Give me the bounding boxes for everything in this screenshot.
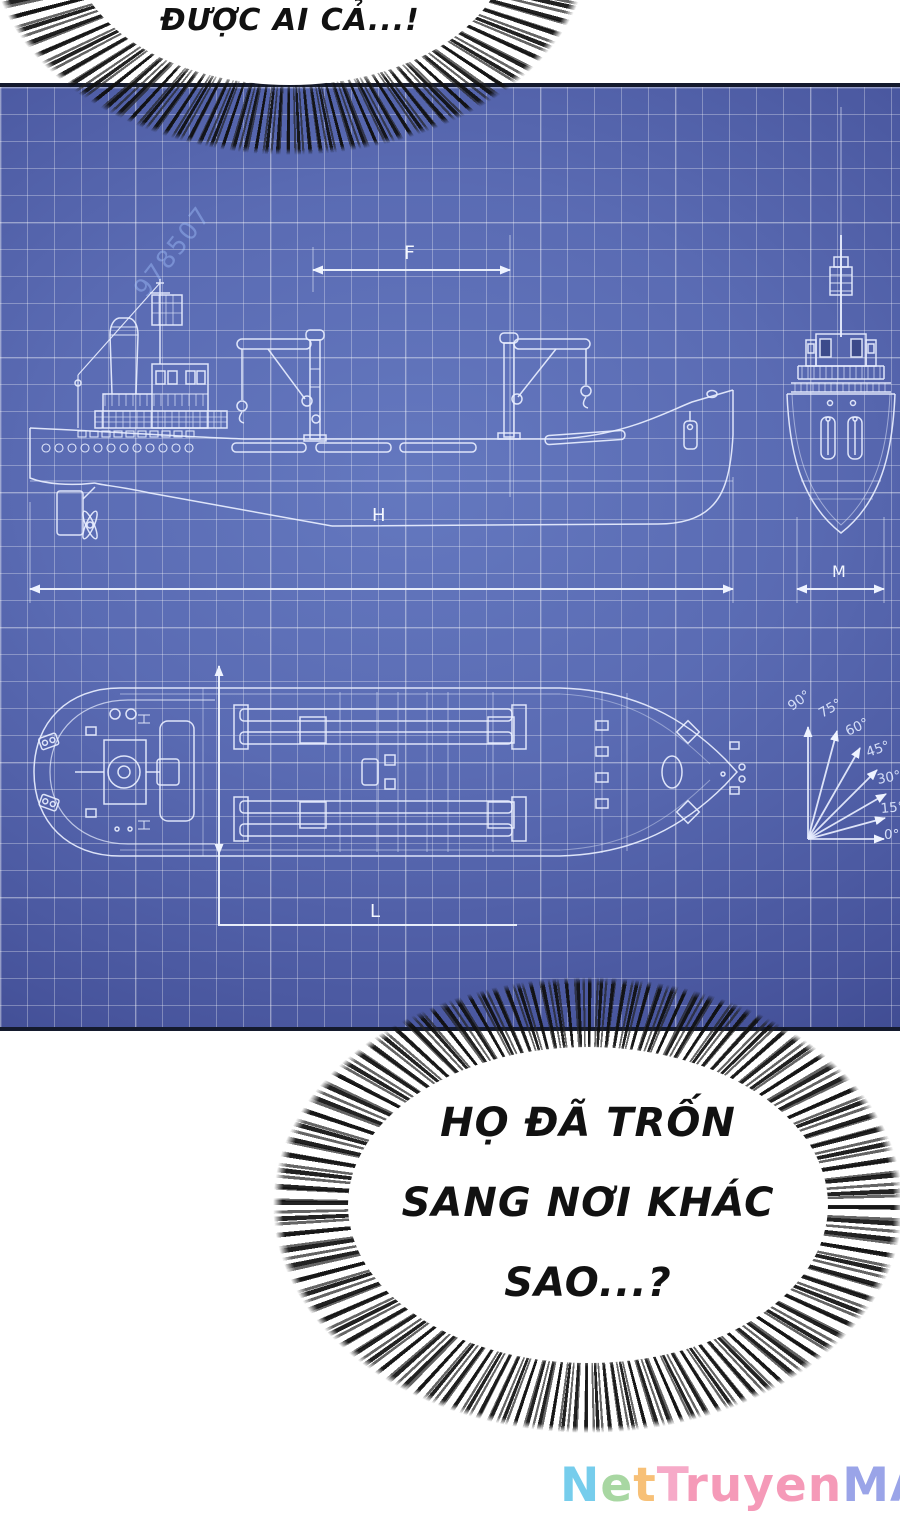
- site-watermark: NetTruyenMAX: [560, 1458, 900, 1513]
- watermark-letter: y: [743, 1458, 775, 1513]
- bow-front-view: [787, 107, 895, 533]
- watermark-letter: e: [775, 1458, 808, 1513]
- bottom-bubble-line-1: HỌ ĐÃ TRỐN: [348, 1083, 828, 1163]
- watermark-letter: M: [842, 1458, 890, 1513]
- watermark-letter: u: [709, 1458, 743, 1513]
- deck-plan-view: [34, 688, 745, 856]
- bottom-bubble-line-3: SAO...?: [348, 1243, 828, 1323]
- bottom-bubble-text: HỌ ĐÃ TRỐN SANG NƠI KHÁC SAO...?: [348, 1083, 828, 1323]
- dim-label-F: F: [404, 242, 415, 264]
- side-elevation-view: [30, 279, 733, 540]
- crane-forward: [498, 333, 591, 439]
- stock-id-watermark: 978507: [128, 200, 217, 303]
- angle-label-15: 15°: [880, 799, 900, 817]
- angle-label-45: 45°: [864, 738, 892, 761]
- angle-label-75: 75°: [816, 696, 845, 722]
- angle-label-60: 60°: [843, 715, 871, 740]
- watermark-letter: e: [600, 1458, 633, 1513]
- dimension-annotations: F H M L: [30, 235, 884, 925]
- top-bubble-text: ĐƯỢC AI CẢ...!: [60, 3, 520, 38]
- watermark-letter: N: [560, 1458, 600, 1513]
- angle-label-90: 90°: [785, 687, 814, 714]
- dim-label-M: M: [832, 562, 846, 581]
- crane-aft: [237, 330, 326, 441]
- watermark-letter: A: [890, 1458, 900, 1513]
- ship-blueprint-drawing: 978507: [0, 87, 900, 1027]
- dim-label-H: H: [372, 505, 386, 526]
- watermark-letter: t: [633, 1458, 656, 1513]
- angle-label-0: 0°: [884, 827, 899, 843]
- hatch-rails: [234, 705, 526, 841]
- dim-label-L: L: [370, 901, 380, 922]
- blueprint-panel: 978507: [0, 83, 900, 1031]
- watermark-letter: T: [657, 1458, 685, 1513]
- watermark-letter: r: [685, 1458, 709, 1513]
- comic-page: { "comic": { "top_bubble": { "text": "ĐƯ…: [0, 0, 900, 1515]
- protractor-fan: 90° 75° 60° 45° 30° 15° 0°: [785, 687, 900, 843]
- watermark-letter: n: [808, 1458, 842, 1513]
- angle-label-30: 30°: [876, 768, 900, 788]
- bottom-bubble-line-2: SANG NƠI KHÁC: [348, 1163, 828, 1243]
